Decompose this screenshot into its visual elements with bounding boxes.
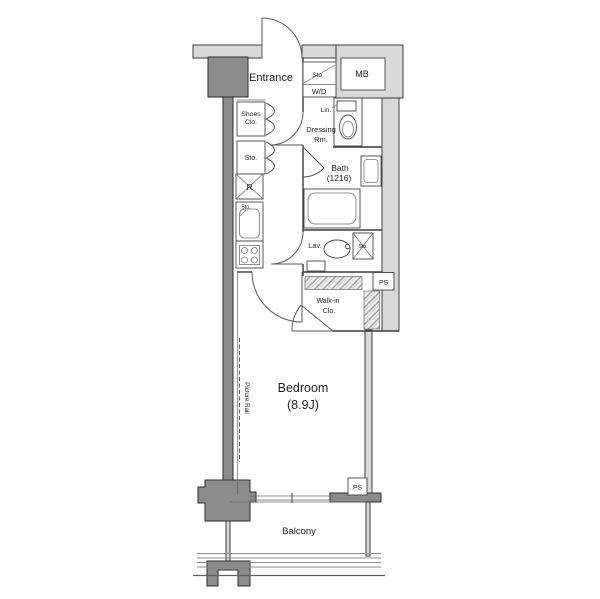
storage-closet-folding-door	[266, 142, 275, 174]
right-wall-upper	[382, 98, 399, 331]
bath-label-line1: Bath	[331, 163, 349, 173]
storage-closet-label: Sto.	[245, 155, 258, 162]
floor-plan-canvas: Entrance Sto. W/D MB Shoes Clo. Sto. Lin…	[0, 0, 600, 599]
walk-in-closet-right-shelf	[364, 291, 380, 329]
entrance-door	[262, 18, 302, 58]
walk-in-closet-label-line1: Walk-in	[316, 298, 339, 305]
lavatory-label: Lav.	[308, 241, 322, 250]
top-wall-left	[193, 45, 262, 58]
washer-dryer-label: W/D	[312, 87, 327, 96]
pillar-bottom-left	[198, 480, 256, 521]
bathtub	[304, 189, 360, 228]
linen-shelf	[337, 101, 356, 111]
storage-top-label: Sto.	[312, 72, 324, 79]
pipe-space-lower-label: PS	[353, 485, 363, 492]
bedroom-door	[252, 272, 302, 322]
lavatory-door	[271, 232, 303, 264]
bath-label-line2: (1216)	[327, 173, 352, 183]
bedroom-label-line1: Bedroom	[278, 381, 329, 395]
shoes-closet-label-line2: Clo.	[245, 119, 257, 126]
balcony-sliding-window	[250, 496, 332, 500]
left-wall	[223, 97, 233, 481]
lavatory-storage-label: Sto.	[358, 244, 367, 250]
pillar-top-left	[208, 57, 248, 97]
dressing-room-label-line1: Dressing	[306, 125, 336, 134]
floor-plan-page: Entrance Sto. W/D MB Shoes Clo. Sto. Lin…	[0, 0, 600, 599]
pipe-space-upper-label: PS	[379, 280, 389, 287]
balcony-left-wall	[226, 521, 230, 562]
kitchen-storage-label: Sto.	[241, 205, 250, 211]
lavatory-sink	[324, 240, 350, 258]
balcony-right-wall	[366, 502, 370, 556]
picture-rail-label: Picture Rail	[243, 382, 250, 414]
meter-box-label: MB	[355, 69, 369, 79]
shoes-closet-label-line1: Shoes	[241, 111, 261, 118]
balcony-label: Balcony	[282, 526, 316, 537]
bedroom-label-line2: (8.9J)	[287, 398, 319, 412]
lavatory-cabinet	[307, 261, 325, 271]
walk-in-closet-label-line2: Clo.	[323, 308, 336, 315]
toilet-bowl	[340, 115, 357, 139]
stove-unit	[236, 241, 263, 268]
entrance-label: Entrance	[249, 72, 293, 84]
right-wall-lower	[365, 330, 372, 502]
lavatory-faucet	[345, 244, 349, 248]
linen-label: Lin.	[321, 107, 332, 114]
shoes-closet-folding-door	[266, 103, 275, 135]
walk-in-closet-top-shelf	[305, 277, 362, 290]
dressing-room-door	[270, 112, 303, 145]
dressing-room-label-line2: Rm.	[314, 135, 328, 144]
pillar-balcony	[207, 561, 250, 586]
fridge-label: R	[247, 183, 253, 192]
bath-door	[303, 147, 324, 177]
